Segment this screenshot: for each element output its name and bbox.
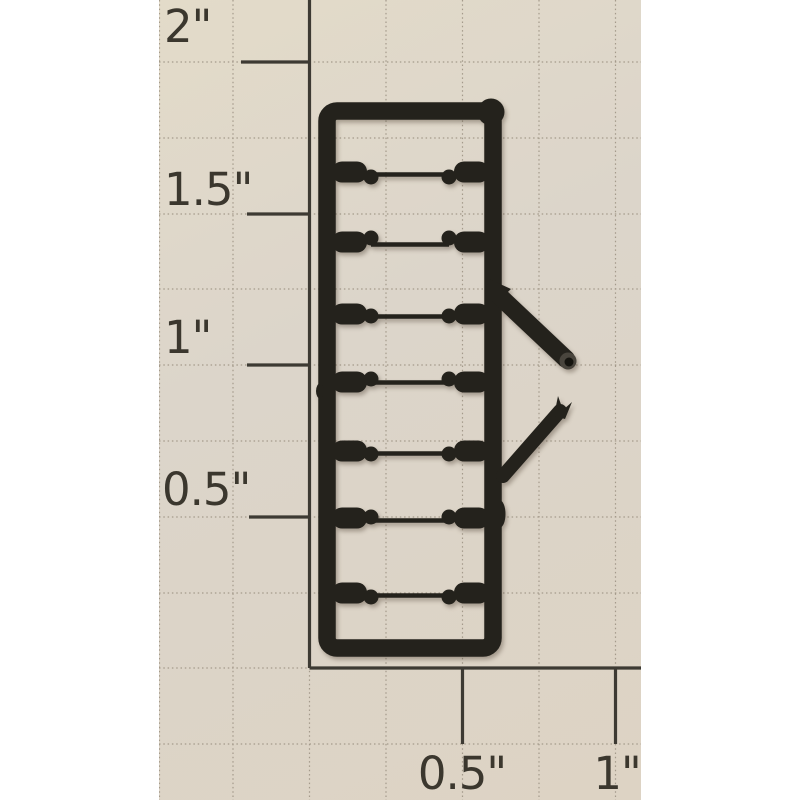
sprue-rung xyxy=(332,508,489,529)
photo-canvas: 2" 1.5" 1" 0.5" 0.5" 1" xyxy=(159,0,641,800)
sprue-rung xyxy=(332,372,489,393)
sprue-rung xyxy=(332,162,489,185)
ruler-labels: 2" 1.5" 1" 0.5" 0.5" 1" xyxy=(162,0,641,800)
sprue-rung xyxy=(332,583,489,605)
sprue-side-pin-upper xyxy=(489,279,577,370)
graph-paper-photo: 2" 1.5" 1" 0.5" 0.5" 1" xyxy=(159,0,641,800)
sprue-rung xyxy=(332,441,489,462)
grid-lines xyxy=(159,0,641,800)
ruler-label-bottom-1in: 1" xyxy=(593,747,640,800)
sprue-left-rail-nub xyxy=(316,384,324,399)
rail-gate-bump xyxy=(495,501,506,528)
sprue-frame-corner-knob xyxy=(478,99,505,126)
ruler-label-2in: 2" xyxy=(164,0,211,53)
pin-cut-bore xyxy=(565,358,574,367)
ruler-label-bottom-0-5in: 0.5" xyxy=(418,747,506,800)
sprue-rung xyxy=(332,304,489,325)
ruler-label-0-5in: 0.5" xyxy=(162,463,250,516)
plastic-ladder-sprue xyxy=(316,99,577,649)
sprue-side-pin-lower xyxy=(495,396,573,528)
ruler-label-1-5in: 1.5" xyxy=(164,163,252,216)
sprue-rung xyxy=(332,231,489,253)
product-photo-page: { "photo": { "description": "Black plast… xyxy=(0,0,800,800)
ruler-label-1in: 1" xyxy=(164,311,211,364)
